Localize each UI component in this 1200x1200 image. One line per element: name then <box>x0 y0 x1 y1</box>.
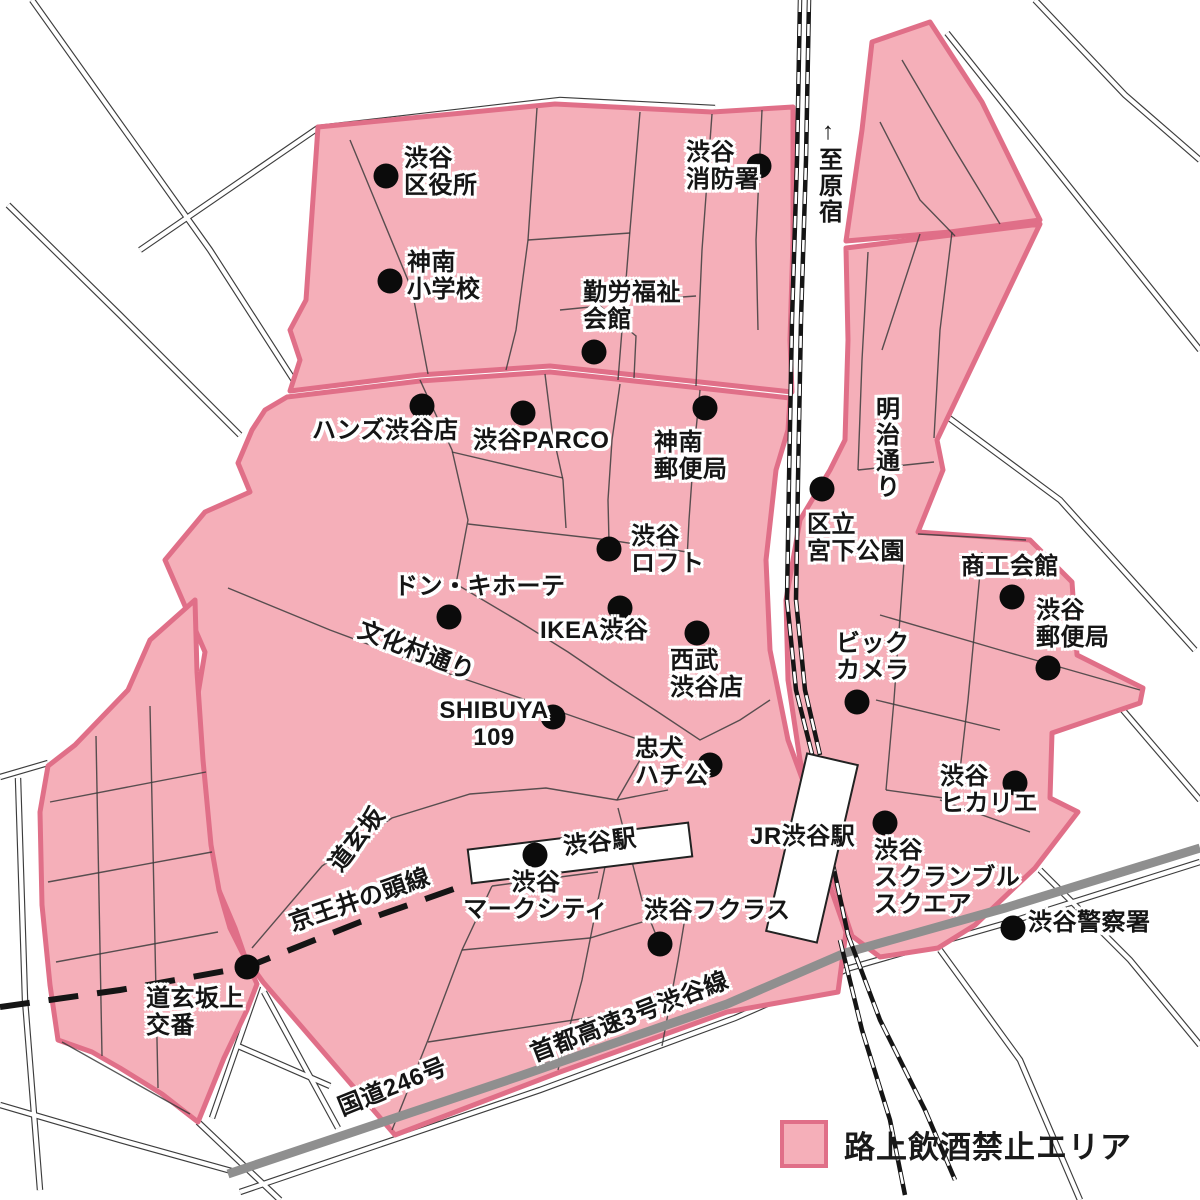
map-canvas: 渋谷 区役所神南 小学校渋谷 消防署勤労福祉 会館ハンズ渋谷店渋谷PARCO神南… <box>0 0 1200 1200</box>
poi-dot-7 <box>810 477 835 502</box>
legend-zone-swatch <box>780 1120 828 1168</box>
poi-dot-13 <box>1036 656 1061 681</box>
legend: 路上飲酒禁止エリア <box>780 1120 1132 1168</box>
poi-dot-8 <box>597 537 622 562</box>
poi-dot-4 <box>410 394 435 419</box>
poi-dot-23 <box>1001 916 1026 941</box>
poi-dot-24 <box>235 955 260 980</box>
shibuya-map <box>0 0 1200 1200</box>
poi-dot-0 <box>374 164 399 189</box>
poi-dot-11 <box>685 621 710 646</box>
legend-label: 路上飲酒禁止エリア <box>844 1122 1132 1167</box>
poi-dot-3 <box>582 340 607 365</box>
poi-dot-10 <box>608 596 633 621</box>
zone-central <box>165 372 846 1135</box>
poi-dot-22 <box>873 811 898 836</box>
zone-north <box>290 104 793 392</box>
poi-dot-16 <box>698 753 723 778</box>
poi-dot-14 <box>845 690 870 715</box>
poi-dot-15 <box>541 705 566 730</box>
poi-dot-6 <box>693 396 718 421</box>
poi-dot-5 <box>511 401 536 426</box>
poi-dot-21 <box>648 932 673 957</box>
no-drinking-zones <box>40 22 1143 1135</box>
poi-dot-9 <box>437 605 462 630</box>
poi-dot-12 <box>1000 585 1025 610</box>
poi-dot-20 <box>523 843 548 868</box>
poi-dot-17 <box>1003 771 1028 796</box>
poi-dot-1 <box>378 269 403 294</box>
poi-dot-2 <box>747 154 772 179</box>
zone-northeast <box>846 22 1040 241</box>
